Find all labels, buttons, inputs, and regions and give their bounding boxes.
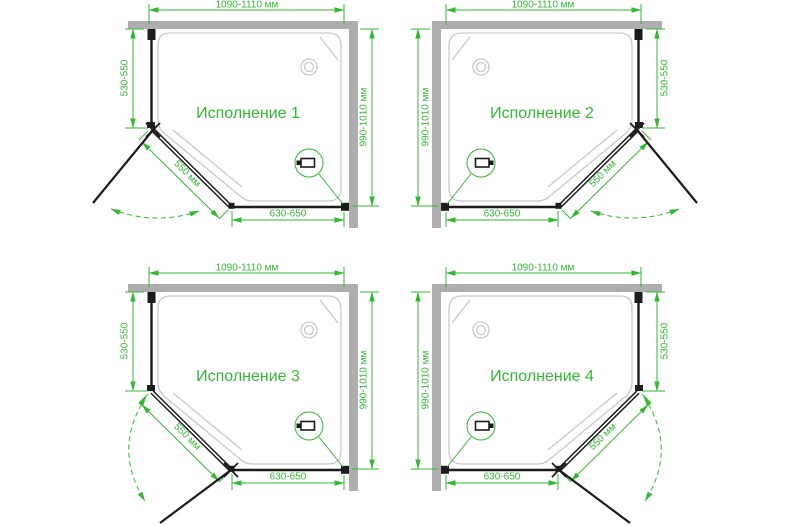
variant-4-svg xyxy=(395,263,790,526)
dim-right-label: 530-550 xyxy=(660,323,671,360)
dim-top-label: 1090-1110 мм xyxy=(216,263,279,274)
variant-title: Исполнение 4 xyxy=(490,368,594,386)
dim-right-label: 990-1010 мм xyxy=(359,351,370,410)
dim-top-label: 1090-1110 мм xyxy=(512,263,575,274)
variant-2-svg xyxy=(395,0,790,263)
dim-left-label: 530-550 xyxy=(120,60,131,97)
variant-3-svg xyxy=(0,263,395,526)
dim-right-label: 990-1010 мм xyxy=(359,88,370,147)
dim-top-label: 1090-1110 мм xyxy=(216,0,279,11)
dim-top-label: 1090-1110 мм xyxy=(512,0,575,11)
door-swing-drawing xyxy=(552,397,661,523)
dim-left-label: 530-550 xyxy=(120,323,131,360)
dim-bottom-label: 630-650 xyxy=(270,472,307,483)
variant-2-diagram: 1090-1110 мм 990-1010 мм 530-550 550 мм … xyxy=(395,0,790,263)
variant-1-svg xyxy=(0,0,395,263)
variant-title: Исполнение 1 xyxy=(196,105,300,123)
variant-3-diagram: 1090-1110 мм 530-550 990-1010 мм 550 мм … xyxy=(0,263,395,526)
door-swing-drawing xyxy=(129,397,238,523)
dim-bottom-label: 630-650 xyxy=(484,472,521,483)
variant-title: Исполнение 3 xyxy=(196,368,300,386)
drawing-sheet: 1090-1110 мм 530-550 990-1010 мм 550 мм … xyxy=(0,0,790,526)
dim-left-label: 990-1010 мм xyxy=(421,351,432,410)
variant-4-diagram: 1090-1110 мм 990-1010 мм 530-550 550 мм … xyxy=(395,263,790,526)
dim-bottom-label: 630-650 xyxy=(270,209,307,220)
dim-left-label: 990-1010 мм xyxy=(421,88,432,147)
variant-title: Исполнение 2 xyxy=(490,105,594,123)
dim-right-label: 530-550 xyxy=(660,60,671,97)
dim-bottom-label: 630-650 xyxy=(484,209,521,220)
variant-1-diagram: 1090-1110 мм 530-550 990-1010 мм 550 мм … xyxy=(0,0,395,263)
